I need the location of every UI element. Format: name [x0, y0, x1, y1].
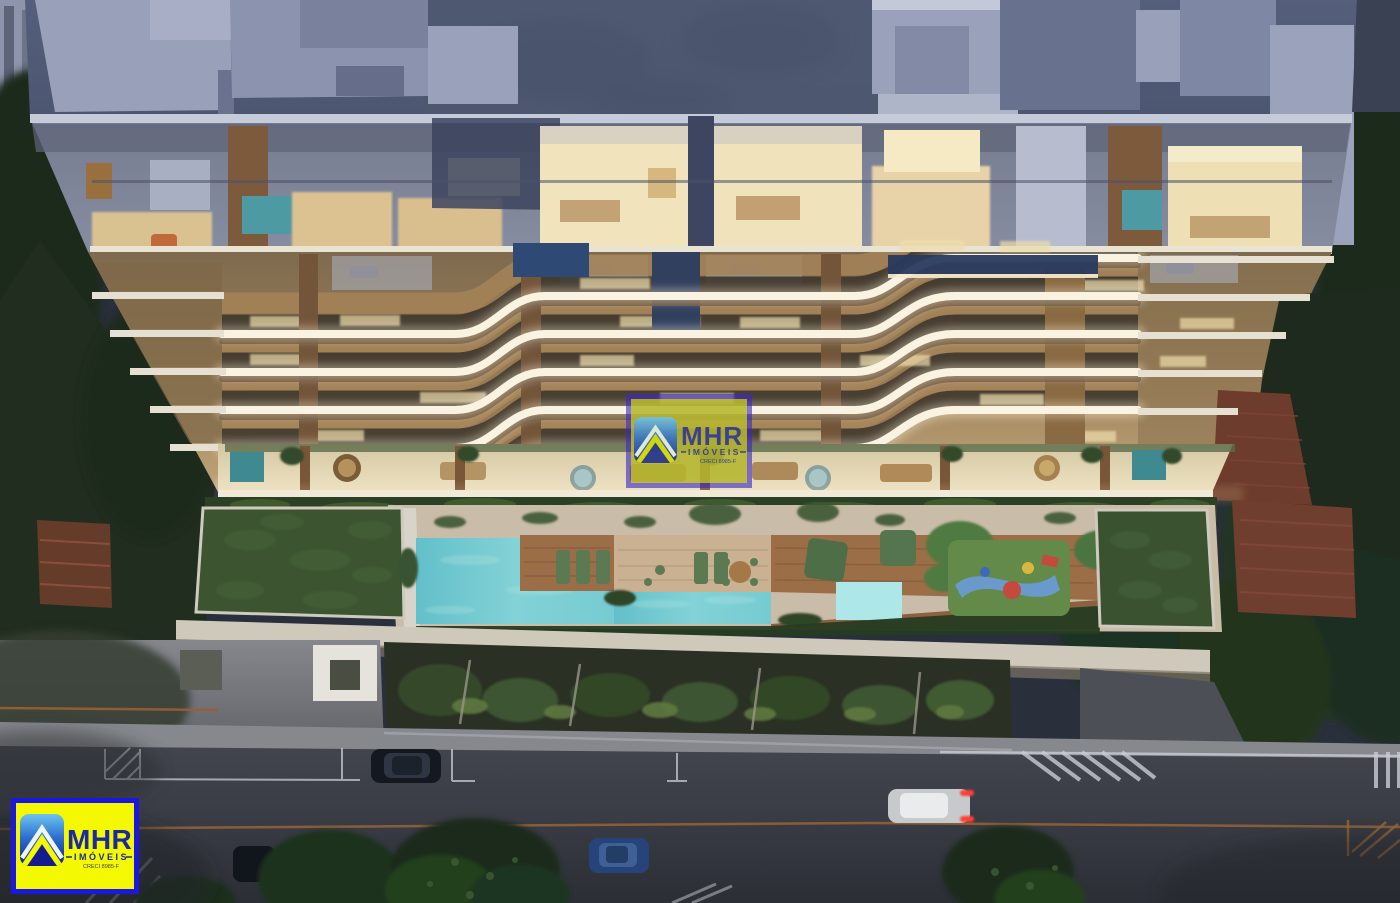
svg-text:CRECI 8985-F: CRECI 8985-F [700, 459, 737, 465]
svg-text:IMÓVEIS: IMÓVEIS [688, 446, 741, 457]
svg-text:IMÓVEIS: IMÓVEIS [74, 851, 129, 862]
svg-text:CRECI 8985-F: CRECI 8985-F [83, 864, 120, 870]
svg-text:MHR: MHR [67, 824, 132, 855]
